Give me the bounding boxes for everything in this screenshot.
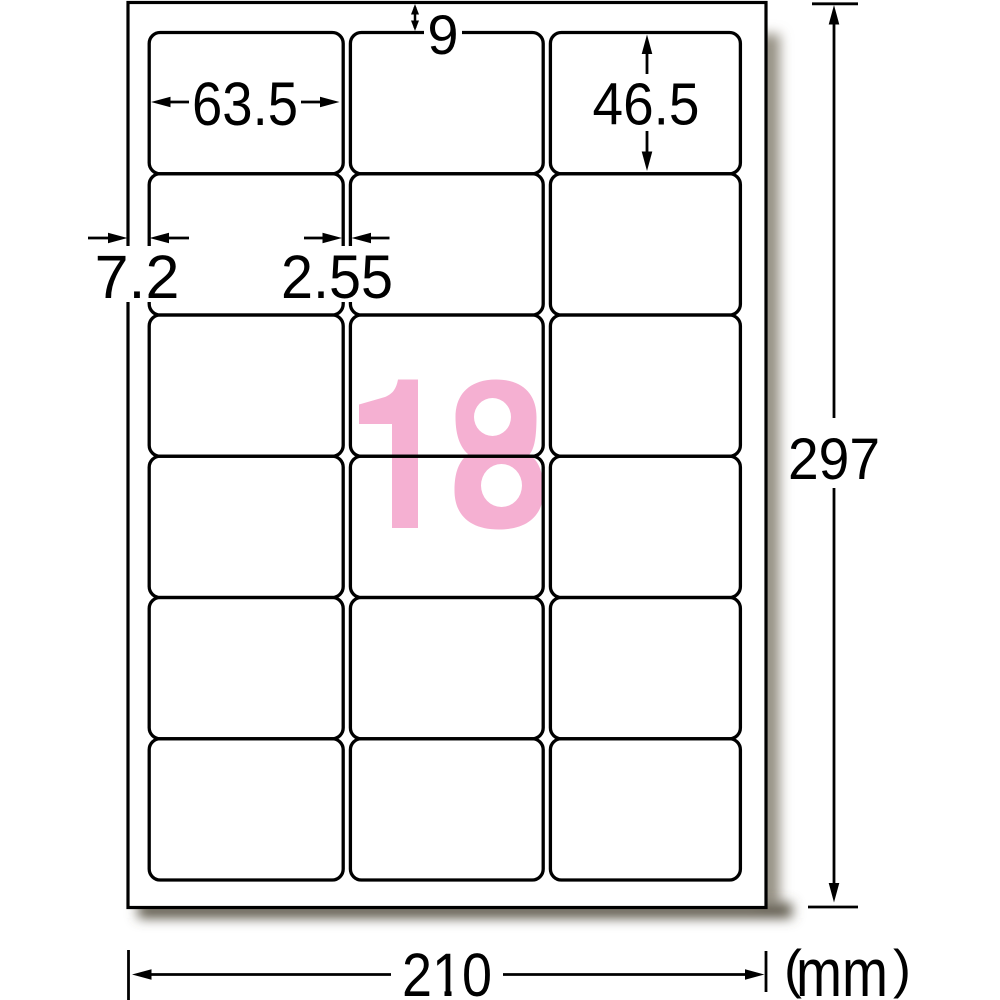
svg-text:297: 297 [788, 427, 880, 492]
svg-text:46.5: 46.5 [593, 72, 700, 138]
svg-text:2.55: 2.55 [281, 243, 393, 311]
svg-text:9: 9 [427, 3, 458, 66]
svg-text:mm: mm [796, 935, 888, 1000]
svg-text:): ) [893, 940, 911, 1000]
svg-text:7.2: 7.2 [95, 243, 180, 311]
svg-text:210: 210 [402, 941, 492, 1000]
svg-text:63.5: 63.5 [192, 70, 298, 138]
